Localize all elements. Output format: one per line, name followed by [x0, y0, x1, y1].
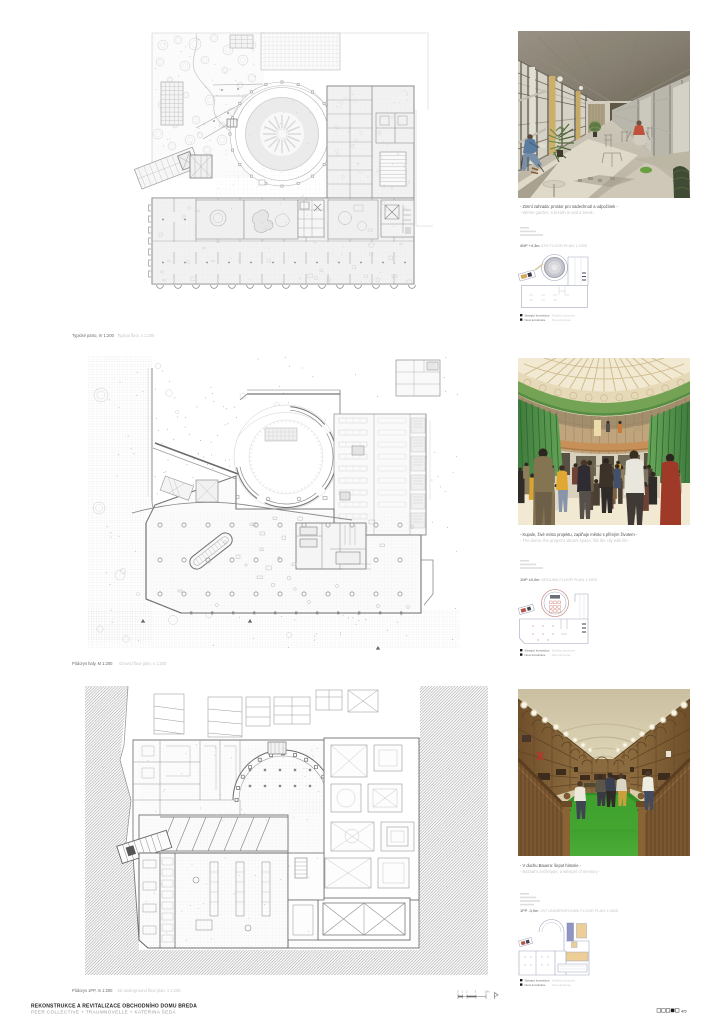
svg-text:- Kupole, živé místo projektu,: - Kupole, živé místo projektu, zaplňuje …: [520, 532, 638, 537]
svg-text:GROUND FLOOR PLAN 1:1500: GROUND FLOOR PLAN 1:1500: [541, 577, 598, 582]
svg-text:4NP +4,3m: 4NP +4,3m: [520, 243, 540, 248]
svg-text:- Winter garden: a breath-in a: - Winter garden: a breath-in and a break…: [520, 210, 596, 215]
svg-text:Existing structures: Existing structures: [552, 979, 575, 983]
svg-text:10m: 10m: [485, 990, 490, 994]
svg-text:1NP ±0,0m: 1NP ±0,0m: [520, 577, 539, 582]
svg-text:1PP -3,9m: 1PP -3,9m: [520, 908, 538, 913]
svg-text:4/5: 4/5: [681, 1008, 687, 1013]
svg-text:New structures: New structures: [552, 983, 571, 987]
svg-text:New structures: New structures: [552, 653, 571, 657]
svg-text:New structures: New structures: [552, 318, 571, 322]
svg-text:Ground floor plan, s 1:200: Ground floor plan, s 1:200: [119, 661, 167, 666]
svg-text:- The dome, the project's vibr: - The dome, the project's vibrant space,…: [520, 538, 631, 543]
svg-text:Stávající konstrukce: Stávající konstrukce: [525, 314, 550, 318]
svg-text:Nové konstrukce: Nové konstrukce: [525, 653, 546, 657]
svg-text:Pôdorys haly, M 1:200: Pôdorys haly, M 1:200: [72, 661, 113, 666]
svg-text:1st underground floor plan, s: 1st underground floor plan, s 1:200: [117, 988, 181, 993]
svg-text:- V duchu Bauera: šepot histor: - V duchu Bauera: šepot historie -: [520, 863, 582, 868]
svg-text:Typical floor, s 1:200: Typical floor, s 1:200: [117, 333, 155, 338]
svg-text:REKONSTRUKCE A REVITALIZACE OB: REKONSTRUKCE A REVITALIZACE OBCHODNÍHO D…: [31, 1002, 197, 1010]
svg-text:Existing structures: Existing structures: [552, 314, 575, 318]
svg-text:Nové konstrukce: Nové konstrukce: [525, 983, 546, 987]
svg-text:- Bazaar's archetype, a whispe: - Bazaar's archetype, a whisper of memor…: [520, 869, 601, 874]
svg-text:Existing structures: Existing structures: [552, 649, 575, 653]
svg-text:Nové konstrukce: Nové konstrukce: [525, 318, 546, 322]
svg-text:1ST UNDERGROUND FLOOR PLAN 1:1: 1ST UNDERGROUND FLOOR PLAN 1:1500: [540, 908, 619, 913]
svg-text:Stávající konstrukce: Stávající konstrukce: [525, 649, 550, 653]
svg-text:Stávající konstrukce: Stávající konstrukce: [525, 979, 550, 983]
svg-text:Typické patro, IV 1:200: Typické patro, IV 1:200: [72, 333, 115, 338]
svg-text:Pôdorys 1PP, m 1:200: Pôdorys 1PP, m 1:200: [72, 988, 113, 993]
svg-text:4TH FLOOR PLAN 1:1500: 4TH FLOOR PLAN 1:1500: [541, 243, 588, 248]
svg-text:PEER COLLECTIVE + TRAUMNOVELLE: PEER COLLECTIVE + TRAUMNOVELLE + KATEŘIN…: [31, 1008, 176, 1015]
svg-text:- Zimní zahrada: prostor pro n: - Zimní zahrada: prostor pro nadechnutí …: [520, 204, 618, 209]
